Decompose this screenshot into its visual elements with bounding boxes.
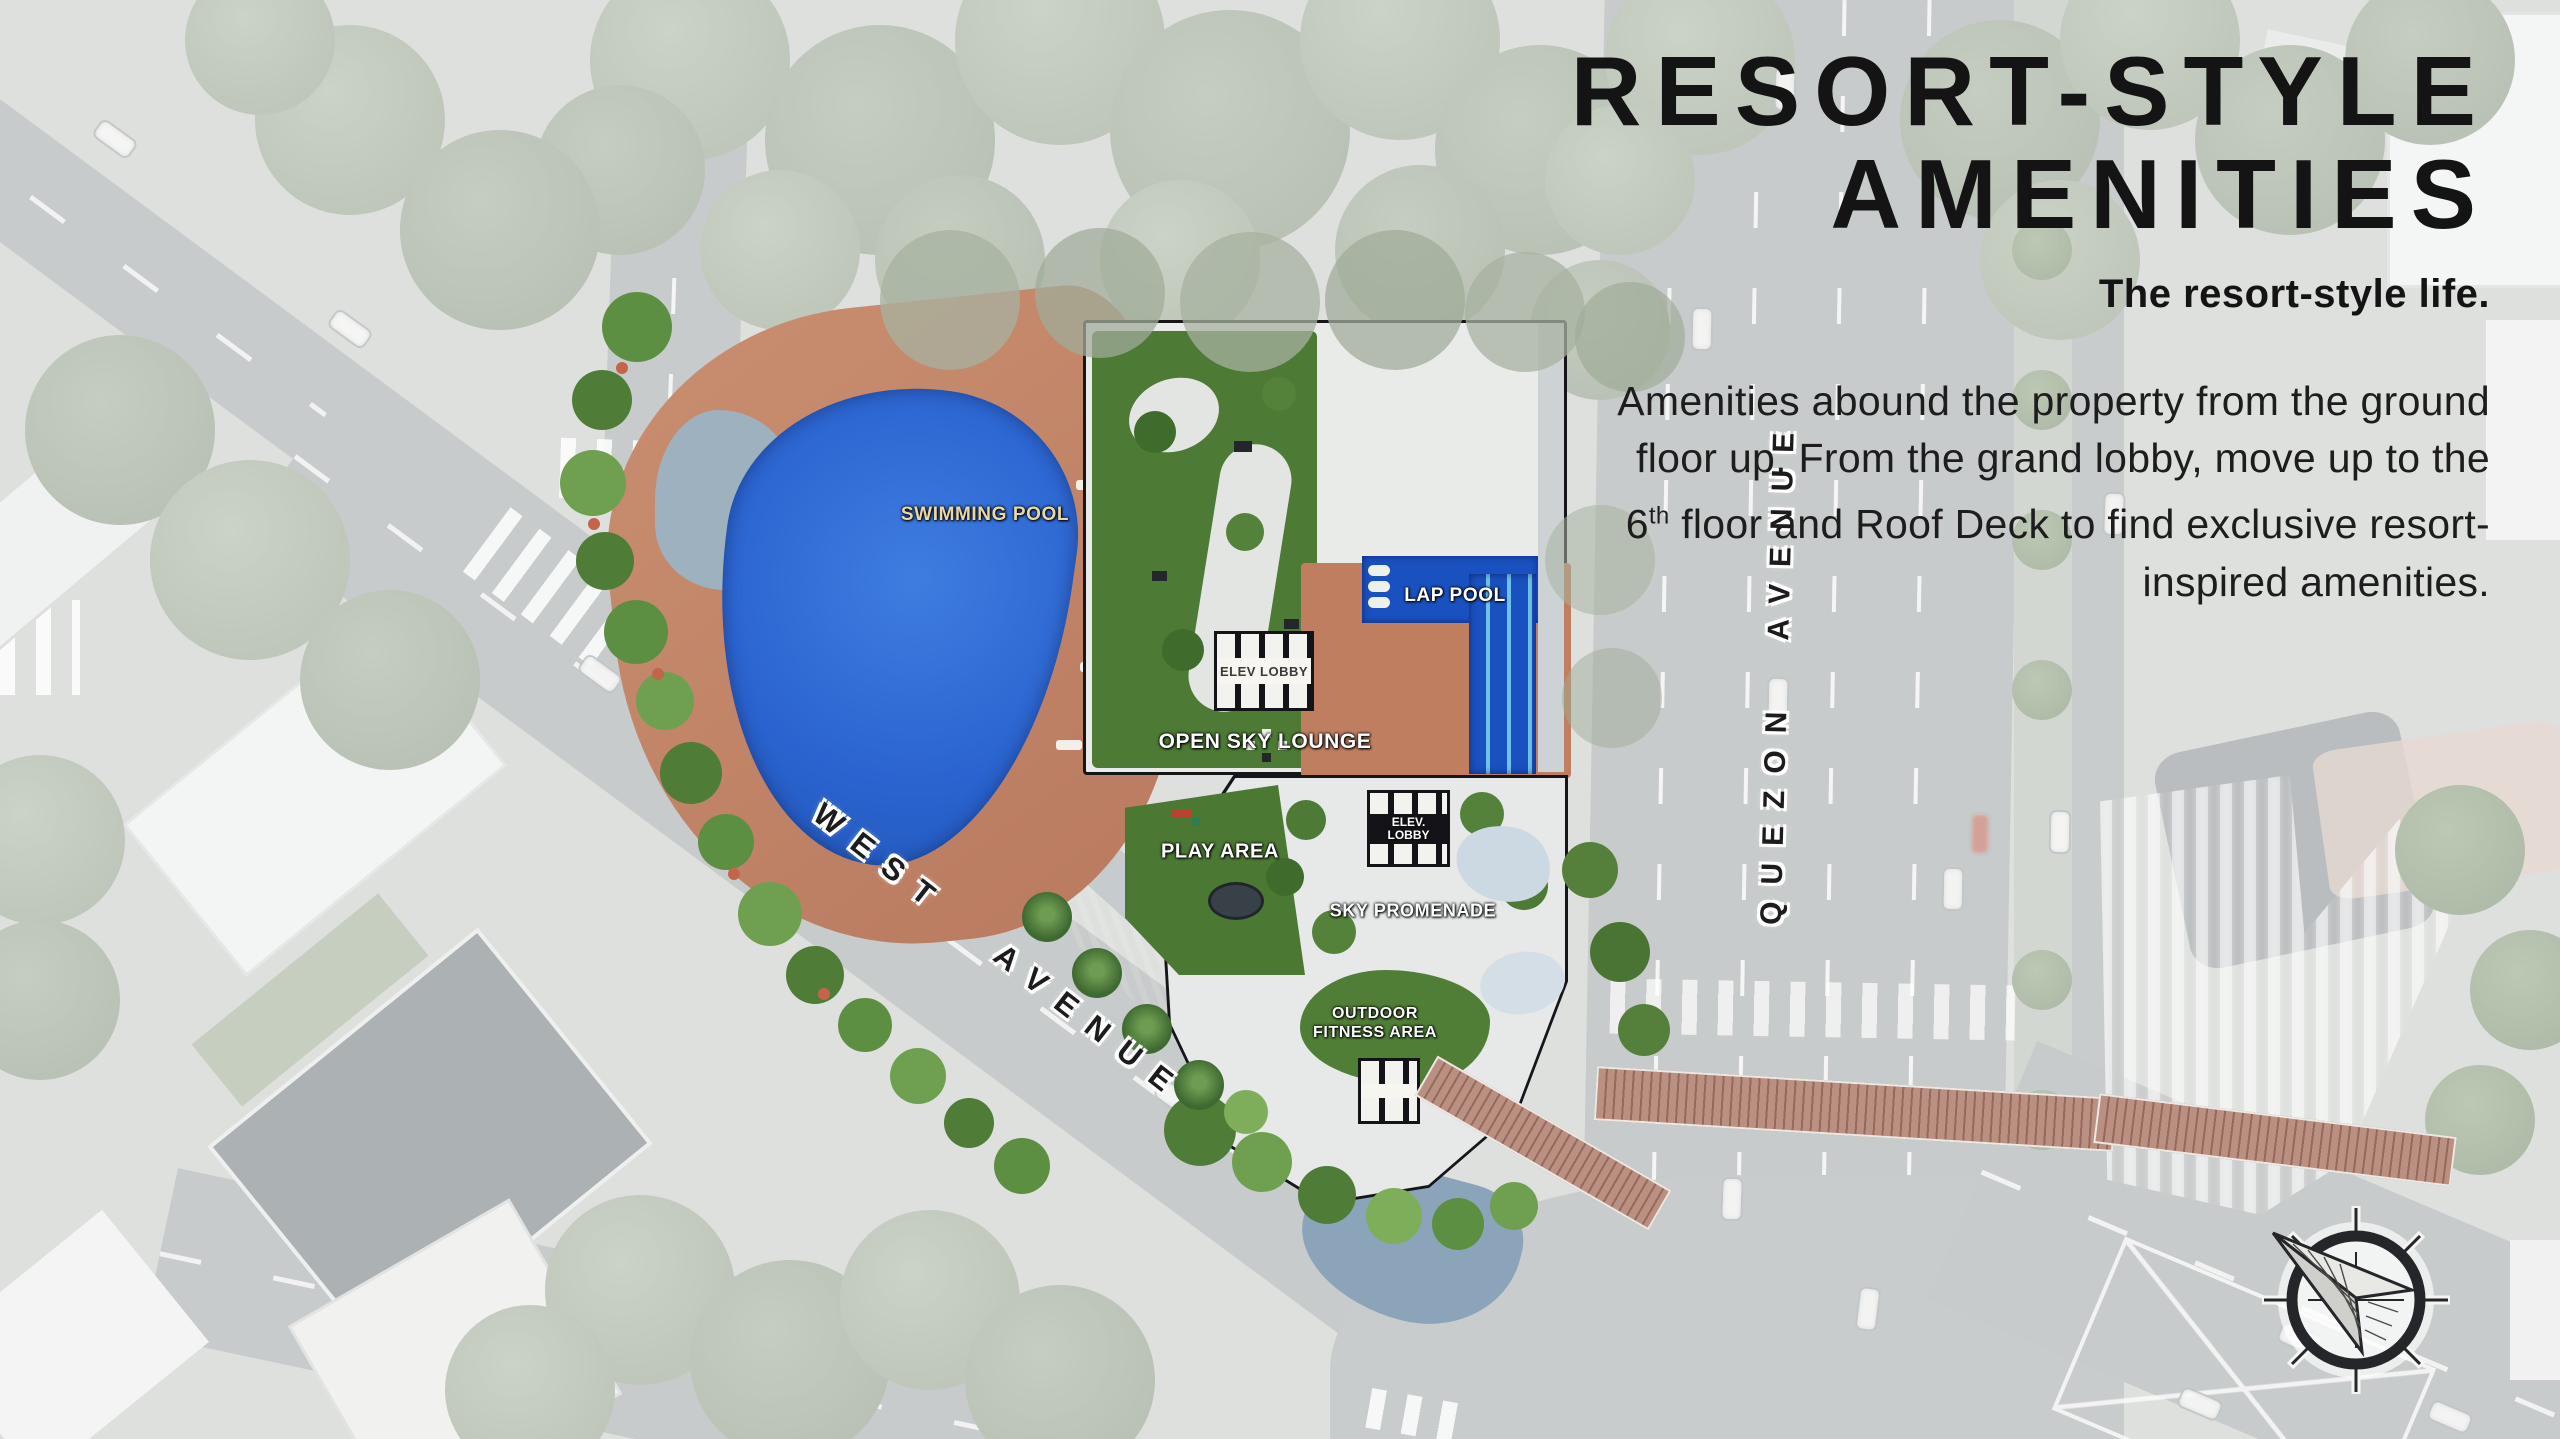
- play-pond: [1208, 882, 1264, 920]
- tree: [0, 755, 125, 925]
- car: [1944, 869, 1963, 909]
- car: [2051, 812, 2070, 852]
- tree: [602, 292, 672, 362]
- elevator-cells: [1217, 684, 1311, 708]
- tree: [698, 814, 754, 870]
- page-title: RESORT-STYLE AMENITIES: [930, 0, 2490, 246]
- flower-bed: [616, 362, 628, 374]
- body-paragraph: Amenities abound the property from the g…: [930, 373, 2490, 612]
- copy-block: RESORT-STYLE AMENITIES The resort-style …: [930, 0, 2490, 611]
- elev-lobby-south-label-1: ELEV.: [1392, 816, 1426, 829]
- tree: [572, 370, 632, 430]
- tree: [2012, 950, 2072, 1010]
- tree: [1366, 1188, 1422, 1244]
- play-equipment: [1192, 818, 1200, 826]
- car: [94, 120, 137, 158]
- cabana: [1284, 619, 1299, 629]
- elevator-lobby-band: ELEV LOBBY: [1217, 658, 1311, 684]
- tree: [1490, 1182, 1538, 1230]
- elevator-cells: [1361, 1098, 1417, 1121]
- play-area-label: PLAY AREA: [1161, 841, 1279, 864]
- tree: [994, 1138, 1050, 1194]
- core-band: [1361, 1084, 1417, 1098]
- palm-tree: [1072, 948, 1122, 998]
- tree: [300, 590, 480, 770]
- flower-bed: [728, 868, 740, 880]
- tree: [2012, 660, 2072, 720]
- lounge-furniture: [1262, 753, 1271, 762]
- crosswalk: [1610, 978, 2016, 1040]
- car: [1971, 814, 1990, 854]
- elev-lobby-north-label: ELEV LOBBY: [1220, 664, 1308, 679]
- tree: [2395, 785, 2525, 915]
- body-line-1: Amenities abound the property from the g…: [1617, 378, 2490, 424]
- flower-bed: [818, 988, 830, 1000]
- tree: [1162, 629, 1204, 671]
- body-line-3: 6th floor and Roof Deck to find exclusiv…: [1626, 501, 2490, 547]
- sky-promenade-label: SKY PROMENADE: [1330, 901, 1497, 922]
- subtitle: The resort-style life.: [930, 272, 2490, 317]
- tree: [604, 600, 668, 664]
- tree: [660, 742, 722, 804]
- tree: [1232, 1132, 1292, 1192]
- tree: [560, 450, 626, 516]
- tree: [944, 1098, 994, 1148]
- car: [1722, 1179, 1741, 1220]
- flower-bed: [652, 668, 664, 680]
- elevator-core-south: ELEV. LOBBY: [1367, 790, 1450, 867]
- body-line-2: floor up. From the grand lobby, move up …: [1636, 435, 2490, 481]
- tree: [2470, 930, 2560, 1050]
- slide-canvas: ELEV LOBBY ELEV: [0, 0, 2560, 1439]
- tree: [1286, 800, 1326, 840]
- compass-rose-icon: [2248, 1192, 2468, 1412]
- play-equipment: [1172, 810, 1192, 818]
- outdoor-fitness-label: OUTDOOR FITNESS AREA: [1313, 1004, 1437, 1042]
- tree: [838, 998, 892, 1052]
- tree: [636, 672, 694, 730]
- elevator-cells: [1370, 793, 1447, 814]
- lounger: [1056, 740, 1082, 750]
- elevator-cells: [1217, 634, 1311, 658]
- elevator-cells: [1370, 844, 1447, 865]
- elev-lobby-south-label-2: LOBBY: [1388, 829, 1430, 842]
- tree: [1298, 1166, 1356, 1224]
- tree: [1266, 858, 1304, 896]
- elevator-core-north: ELEV LOBBY: [1214, 631, 1314, 711]
- building: [2510, 1240, 2560, 1380]
- elevator-cells: [1361, 1061, 1417, 1084]
- open-sky-lounge-label: OPEN SKY LOUNGE: [1159, 730, 1372, 754]
- palm-tree: [1022, 892, 1072, 942]
- tree: [0, 920, 120, 1080]
- tree: [890, 1048, 946, 1104]
- elevator-lobby-band: ELEV. LOBBY: [1370, 814, 1447, 844]
- ordinal-superscript: th: [1649, 503, 1670, 530]
- tree: [786, 946, 844, 1004]
- outdoor-fitness-label-line2: FITNESS AREA: [1313, 1024, 1437, 1041]
- body-line-4: inspired amenities.: [2142, 559, 2490, 605]
- flower-bed: [588, 518, 600, 530]
- building: [2486, 320, 2560, 540]
- tree: [1432, 1198, 1484, 1250]
- utility-core: [1358, 1058, 1420, 1124]
- outdoor-fitness-label-line1: OUTDOOR: [1332, 1005, 1418, 1022]
- tree: [576, 532, 634, 590]
- tree: [738, 882, 802, 946]
- car: [329, 310, 372, 348]
